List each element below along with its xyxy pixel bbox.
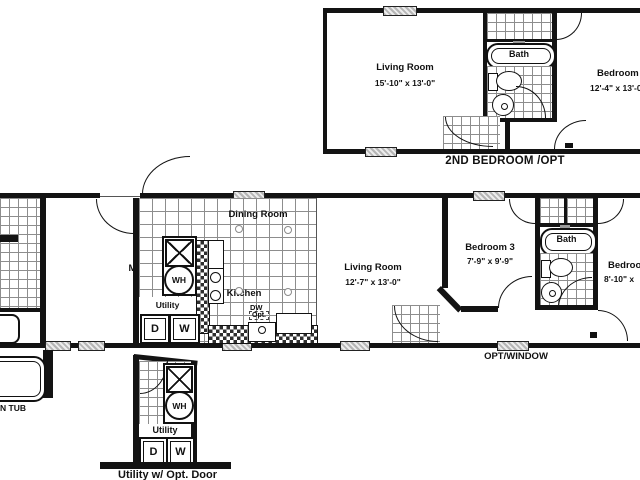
shelf-x-icon: [166, 366, 193, 393]
closet-floor-tile: [487, 13, 552, 39]
washer-label: W: [173, 318, 196, 340]
bedroom2-label: Bedroom 2: [597, 68, 640, 79]
wall: [0, 235, 18, 242]
dishwasher-opt-label: Opt.: [249, 311, 269, 320]
master-bath-floor-tile: [0, 198, 40, 310]
garden-tub-inner: [0, 361, 41, 397]
angled-wall: [437, 286, 463, 312]
floorplan-image: Bath Living Room 15'-10" x 13'-0" Bedroo…: [0, 0, 640, 480]
living-room-label: Living Room: [325, 62, 485, 73]
washer-box: W: [169, 314, 200, 344]
toilet-icon: [549, 258, 573, 277]
wall: [461, 306, 498, 312]
washer-label: W: [170, 441, 191, 463]
baseline-bar: [100, 462, 231, 469]
door-arc: [498, 276, 532, 308]
bath-label: Bath: [540, 234, 593, 244]
door-arc: [598, 310, 628, 341]
dryer-box: D: [140, 314, 170, 344]
ceiling-light-icon: [284, 226, 292, 234]
water-heater-icon: WH: [165, 391, 194, 420]
burner-icon: [210, 272, 221, 283]
dining-room-label: Dining Room: [203, 209, 313, 220]
water-heater-icon: WH: [164, 265, 194, 295]
door-leaf: [590, 332, 597, 338]
wall: [505, 118, 510, 152]
window-hatch: [365, 147, 397, 157]
bedroom-right-dims: 8'-10" x: [604, 274, 634, 284]
fixture: [0, 314, 20, 344]
garden-tub: [0, 356, 46, 402]
bedroom3-dims: 7'-9" x 9'-9": [440, 256, 540, 266]
ceiling-light-icon: [235, 225, 243, 233]
top-plan-caption: 2ND BEDROOM /OPT: [400, 155, 610, 167]
bedroom2-dims: 12'-4" x 13'-0": [590, 83, 640, 93]
window-hatch: [383, 6, 417, 16]
faucet-icon: [258, 326, 266, 334]
closet-floor-tile: [567, 198, 593, 223]
door-arc: [598, 199, 624, 224]
living-room-label: Living Room: [303, 262, 443, 273]
ceiling-light-icon: [284, 288, 292, 296]
utility-detail-caption: Utility w/ Opt. Door: [95, 469, 240, 480]
shelf-x-icon: [165, 239, 194, 267]
utility-label: Utility: [139, 425, 191, 435]
wall: [323, 8, 640, 13]
wall: [40, 198, 46, 343]
opt-window-caption: OPT/WINDOW: [455, 351, 577, 362]
window-hatch: [78, 341, 105, 351]
door-arc: [509, 199, 535, 224]
living-room-dims: 12'-7" x 13'-0": [303, 277, 443, 287]
dryer-label: D: [143, 441, 164, 463]
window-hatch: [340, 341, 370, 351]
door-arc: [142, 156, 190, 194]
burner-icon: [210, 290, 221, 301]
wall: [564, 198, 567, 223]
living-room-dims: 15'-10" x 13'-0": [325, 78, 485, 88]
bedroom-right-label: Bedroom: [608, 260, 640, 271]
garden-tub-label: N TUB: [0, 403, 26, 413]
refrigerator: [208, 240, 224, 269]
closet-floor-tile: [540, 198, 564, 223]
bedroom3-label: Bedroom 3: [440, 242, 540, 253]
dishwasher-box: [276, 313, 312, 334]
utility-label: Utility: [139, 300, 196, 310]
wall: [0, 308, 40, 312]
dryer-label: D: [144, 318, 166, 340]
door-arc: [556, 13, 582, 40]
door-leaf: [565, 143, 573, 148]
wall: [535, 305, 598, 310]
window-hatch: [473, 191, 505, 201]
door-arc: [96, 199, 134, 234]
window-hatch: [497, 341, 529, 351]
ceiling-light-icon: [235, 287, 243, 295]
bath-label: Bath: [486, 49, 552, 59]
door-opening-line: [100, 196, 140, 197]
sink-icon: [492, 94, 514, 116]
